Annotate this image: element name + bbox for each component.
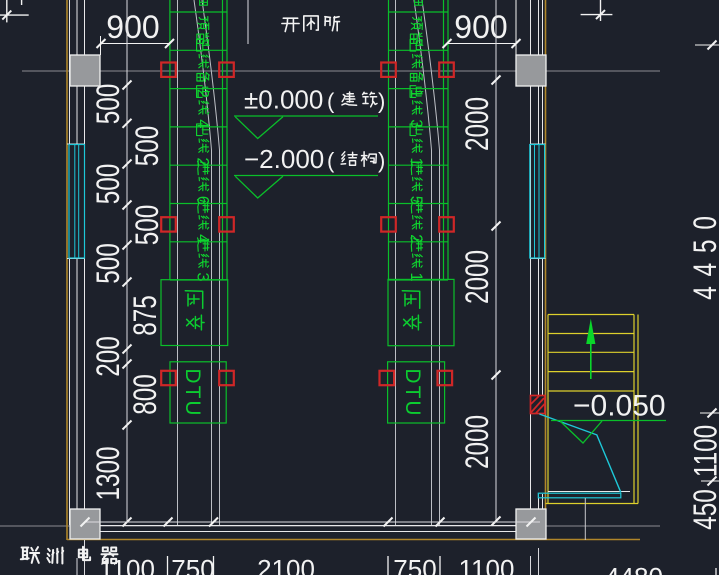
svg-text:−0.050: −0.050 xyxy=(573,390,666,423)
svg-text:1: 1 xyxy=(407,157,425,166)
svg-text:(: ( xyxy=(327,148,335,173)
svg-text:500: 500 xyxy=(130,205,166,246)
svg-text:): ) xyxy=(378,89,385,114)
svg-text:875: 875 xyxy=(128,295,164,336)
svg-text:900: 900 xyxy=(454,9,507,45)
svg-text:DTU: DTU xyxy=(401,368,424,417)
svg-text:2: 2 xyxy=(194,157,212,166)
svg-text:2000: 2000 xyxy=(460,415,496,469)
svg-text:2000: 2000 xyxy=(460,97,496,151)
svg-text:500: 500 xyxy=(130,126,166,167)
svg-text:2000: 2000 xyxy=(460,250,496,304)
svg-text:−2.000: −2.000 xyxy=(244,144,324,174)
svg-text:500: 500 xyxy=(91,164,127,205)
svg-text:1100: 1100 xyxy=(459,554,515,575)
svg-text:1300: 1300 xyxy=(91,446,127,500)
svg-text:2100: 2100 xyxy=(257,554,315,575)
svg-text:DTU: DTU xyxy=(181,368,204,417)
svg-text:500: 500 xyxy=(91,243,127,284)
svg-text:4480: 4480 xyxy=(605,562,663,575)
svg-text:±0.000: ±0.000 xyxy=(244,85,323,115)
svg-text:750: 750 xyxy=(171,554,214,575)
svg-text:1100: 1100 xyxy=(99,554,155,575)
svg-text:900: 900 xyxy=(106,9,159,45)
svg-text:450: 450 xyxy=(688,489,719,530)
svg-text:800: 800 xyxy=(128,374,164,415)
svg-text:1100: 1100 xyxy=(688,425,719,477)
svg-text:1: 1 xyxy=(407,272,425,281)
svg-text:4450: 4450 xyxy=(688,206,719,300)
svg-text:200: 200 xyxy=(91,336,127,377)
svg-text:(: ( xyxy=(327,89,335,114)
svg-text:500: 500 xyxy=(91,84,127,125)
svg-text:): ) xyxy=(378,148,385,173)
svg-text:750: 750 xyxy=(393,554,436,575)
